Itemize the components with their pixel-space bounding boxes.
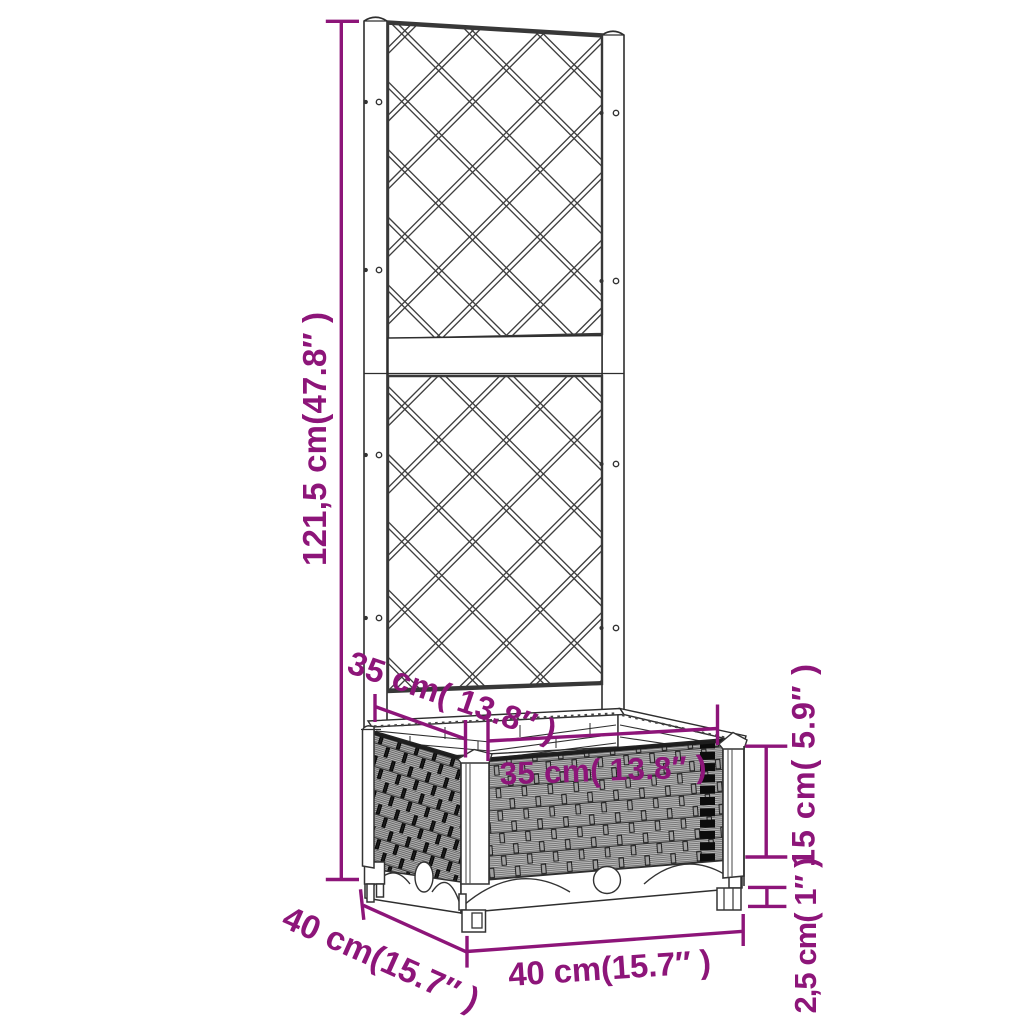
svg-text:15 cm( 5.9″ ): 15 cm( 5.9″ ) bbox=[786, 664, 822, 867]
svg-text:35 cm( 13.8″ ): 35 cm( 13.8″ ) bbox=[499, 748, 707, 791]
svg-text:121,5 cm(47.8″ ): 121,5 cm(47.8″ ) bbox=[296, 312, 333, 566]
svg-text:2,5 cm( 1″ ): 2,5 cm( 1″ ) bbox=[788, 858, 823, 1014]
